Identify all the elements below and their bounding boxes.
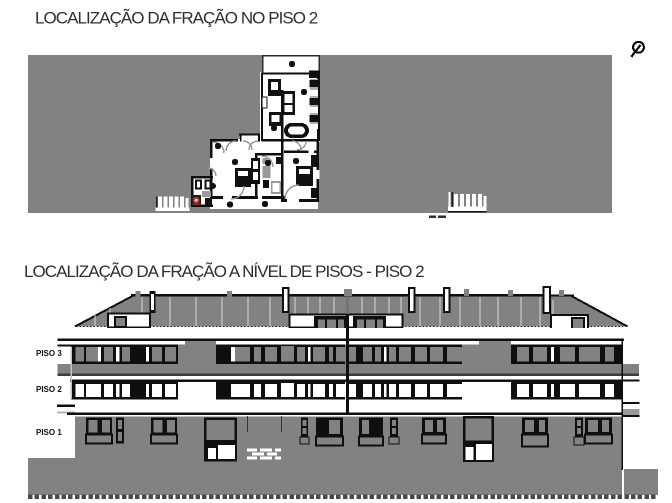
svg-text:PISO 1: PISO 1 bbox=[36, 428, 62, 437]
svg-text:LOCALIZAÇÃO DA FRAÇÃO NO PISO: LOCALIZAÇÃO DA FRAÇÃO NO PISO 2 bbox=[35, 8, 318, 27]
svg-text:LOCALIZAÇÃO DA FRAÇÃO A NÍVEL: LOCALIZAÇÃO DA FRAÇÃO A NÍVEL DE PISOS -… bbox=[24, 262, 424, 281]
svg-text:PISO 3: PISO 3 bbox=[36, 349, 62, 358]
svg-text:PISO 2: PISO 2 bbox=[36, 385, 62, 394]
